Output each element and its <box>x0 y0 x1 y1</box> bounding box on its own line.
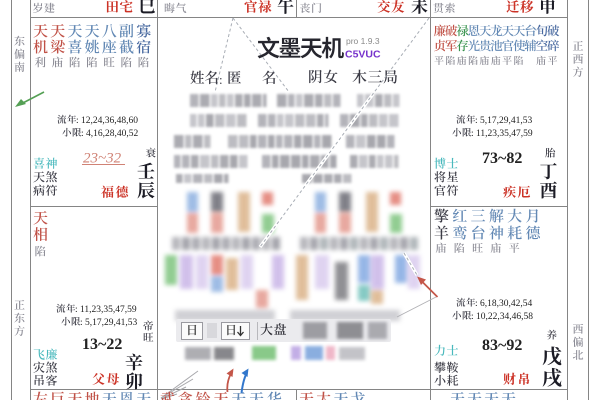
svg-text:: 11,23,35,47,59: : 11,23,35,47,59 <box>75 305 137 315</box>
svg-text:: 5,17,29,41,53: : 5,17,29,41,53 <box>475 116 533 126</box>
svg-text:: 6,18,30,42,54: : 6,18,30,42,54 <box>475 299 533 309</box>
svg-text::: : <box>219 72 223 87</box>
svg-text:: 10,22,34,46,58: : 10,22,34,46,58 <box>471 312 533 322</box>
svg-text:83~92: 83~92 <box>482 337 522 354</box>
svg-text:: 12,24,36,48,60: : 12,24,36,48,60 <box>76 116 138 126</box>
svg-text:pro 1.9.3: pro 1.9.3 <box>346 36 380 46</box>
svg-text:C5VUC: C5VUC <box>345 49 381 61</box>
svg-text:: 5,17,29,41,53: : 5,17,29,41,53 <box>80 318 138 328</box>
svg-text:73~82: 73~82 <box>482 150 522 167</box>
svg-text:13~22: 13~22 <box>82 336 122 353</box>
svg-text:: 4,16,28,40,52: : 4,16,28,40,52 <box>81 129 139 139</box>
svg-text:: 11,23,35,47,59: : 11,23,35,47,59 <box>471 129 533 139</box>
